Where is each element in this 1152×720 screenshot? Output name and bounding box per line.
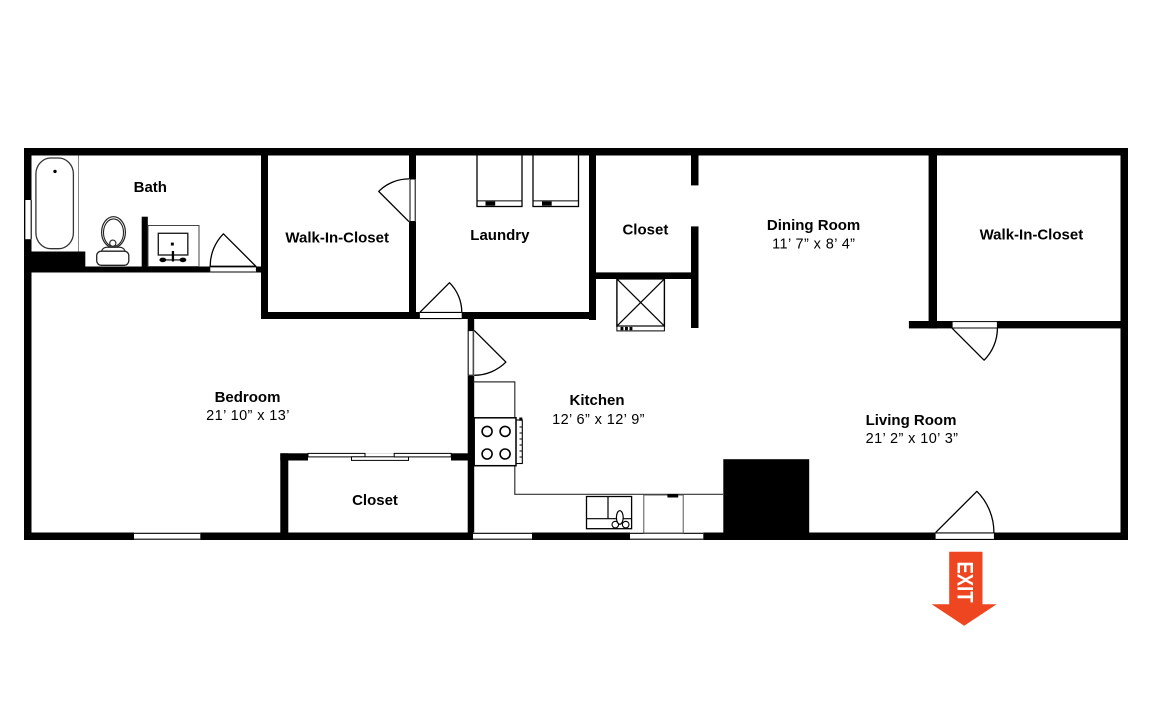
svg-text:Closet: Closet (352, 492, 398, 509)
svg-text:Bedroom: Bedroom (215, 389, 281, 406)
svg-text:Bath: Bath (134, 179, 167, 196)
svg-text:21’ 10” x 13’: 21’ 10” x 13’ (206, 408, 290, 424)
svg-text:EXIT: EXIT (952, 562, 977, 603)
svg-text:Laundry: Laundry (470, 227, 530, 244)
svg-text:21’ 2” x 10’ 3”: 21’ 2” x 10’ 3” (866, 431, 959, 447)
svg-text:Living Room: Living Room (866, 412, 957, 429)
svg-text:Walk-In-Closet: Walk-In-Closet (980, 226, 1084, 243)
svg-text:Walk-In-Closet: Walk-In-Closet (285, 229, 389, 246)
svg-text:Kitchen: Kitchen (569, 392, 624, 409)
svg-text:12’ 6” x 12’ 9”: 12’ 6” x 12’ 9” (552, 412, 645, 428)
svg-text:11’ 7” x 8’ 4”: 11’ 7” x 8’ 4” (772, 237, 855, 253)
svg-text:Closet: Closet (622, 222, 668, 239)
svg-text:Dining Room: Dining Room (767, 217, 860, 234)
